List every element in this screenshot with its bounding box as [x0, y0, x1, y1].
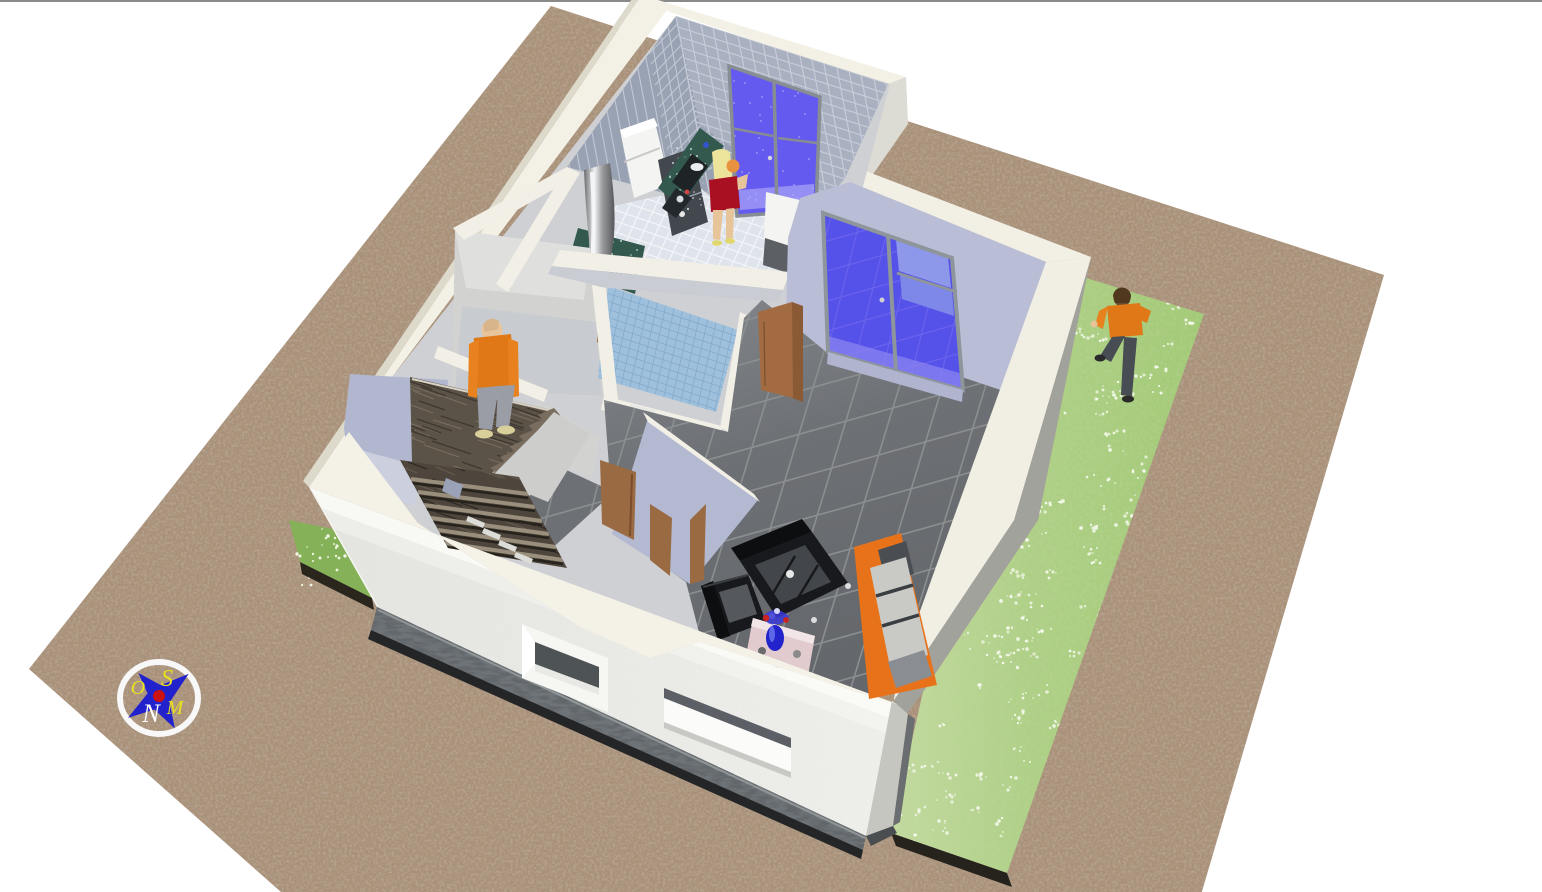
- svg-text:N: N: [141, 699, 161, 728]
- svg-text:M: M: [166, 697, 185, 719]
- svg-text:S: S: [161, 666, 173, 692]
- svg-text:O: O: [131, 677, 145, 699]
